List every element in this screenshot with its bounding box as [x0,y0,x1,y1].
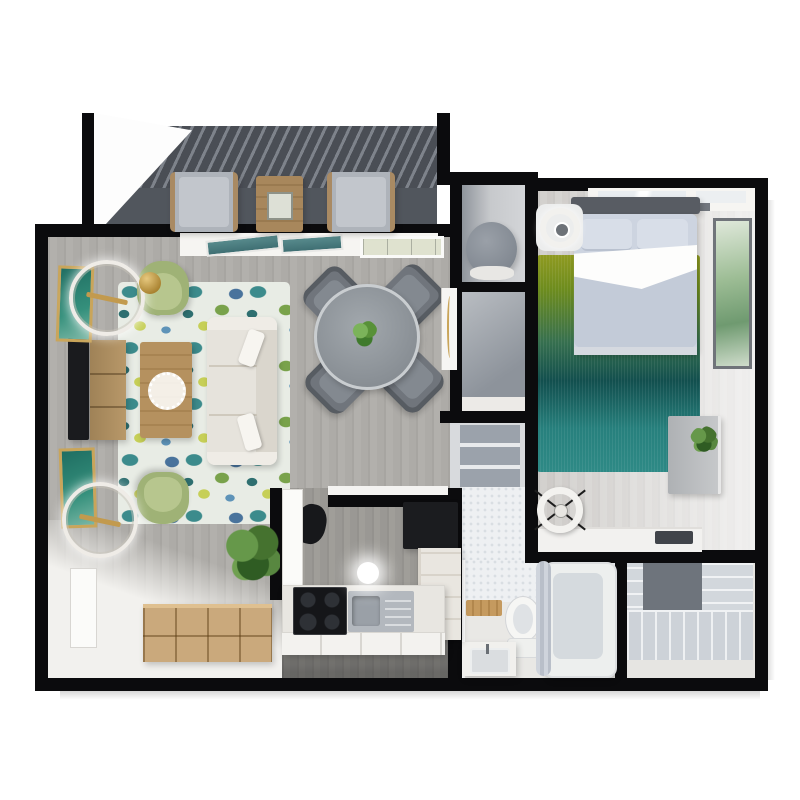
living-open-door [70,568,97,648]
wall-balcony-left [82,113,94,237]
balcony-lounge-chair-right [327,172,395,232]
living-potted-plant [226,524,280,586]
sofa-armrest-bottom [207,452,277,465]
bedroom-desk [668,416,721,494]
bathtub-interior [553,573,603,659]
chair-cushion [336,177,386,227]
bathtub [543,562,617,678]
wall-utility-top [450,172,538,185]
bed-footboard [574,347,697,355]
coffee-table-doily [148,372,186,410]
ledge-vent-slot [655,531,693,544]
wall-closet-bottom [440,411,538,423]
toilet-seat [513,604,533,634]
bathroom-upper-tile-wall [462,487,525,560]
shower-curtain [536,561,551,676]
sink-basin [352,596,380,626]
closet-shelving-bottom [627,610,753,660]
ring-chandelier-lower [62,482,138,558]
shadow-right-of-building [768,200,775,680]
armchair-bottom [137,472,189,524]
bedroom-wall-art [713,218,752,369]
console-seam [90,406,126,408]
tv-console [90,340,126,440]
wall-left [35,224,48,691]
balcony-lounge-chair-left [170,172,238,232]
bed-pillow-left [581,219,632,251]
wall-right [755,178,768,691]
chair-cushion [179,177,229,227]
fan-hub [554,222,570,238]
closet-back-panel [638,563,702,611]
wall-closet-divider [450,282,525,292]
wall-balcony-right [437,113,450,185]
gold-door-trim [447,296,453,358]
wall-bottom [35,678,768,691]
bed-headboard [571,197,700,214]
lantern-on-table [267,192,293,220]
sink-drainboard [385,597,411,626]
sofa-armrest-top [207,317,277,330]
desk-plant [690,426,718,454]
dining-window [360,236,444,258]
ring-chandelier-upper [69,260,145,336]
sofa [207,317,277,465]
gold-pendant-sphere [139,272,161,294]
kitchen-sink-unit [348,591,414,632]
storage-cube-unit [143,604,272,662]
water-heater-base [470,266,514,280]
tv [68,338,89,440]
console-seam [90,373,126,375]
wheel-hub [554,504,568,518]
cooktop [293,587,347,635]
refrigerator [403,502,458,549]
floor-plan [0,0,800,800]
shadow-below-building [60,691,760,700]
chandelier-arm [79,514,121,528]
hall-closet-floor [462,397,525,411]
bath-wood-bench [466,600,502,616]
vanity-faucet [486,644,489,654]
bedroom-window-pane-small [696,191,746,203]
kitchen-ceiling-light [357,562,379,584]
vanity-sink [470,648,510,674]
ceiling-fan-icon [540,208,580,248]
chandelier-arm [86,292,128,306]
wheel-decor [528,478,592,542]
table-centerpiece-plant [351,320,378,347]
hall-closet-interior [462,292,525,411]
armchair-seat [144,477,182,512]
linen-cabinet [460,425,520,487]
closet-open-door [441,288,457,370]
